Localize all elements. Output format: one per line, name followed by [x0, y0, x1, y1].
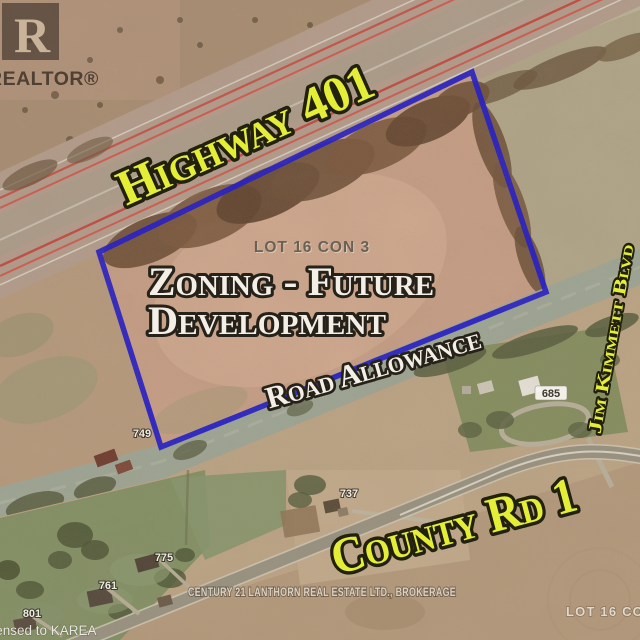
lot-16-con-3-label: LOT 16 CON 3: [254, 239, 370, 256]
house-number-775: 775: [155, 552, 173, 564]
house-number-761: 761: [99, 580, 117, 592]
house-number-737: 737: [340, 488, 358, 500]
lot-16-con-bottom-label: LOT 16 CON: [566, 604, 640, 619]
realtor-r-glyph: R: [14, 7, 51, 63]
license-watermark: Licensed to KAREA: [0, 623, 97, 638]
brokerage-watermark: CENTURY 21 LANTHORN REAL ESTATE LTD., BR…: [188, 587, 456, 599]
house-number-685: 685: [542, 388, 560, 400]
listing-photo: R REALTOR® Highway 401 LOT 16 CON 3 Zoni…: [0, 0, 640, 640]
house-number-685-badge: 685: [535, 386, 567, 400]
zoning-label-line2: Development: [148, 298, 386, 343]
house-number-801: 801: [23, 608, 41, 620]
realtor-wordmark: REALTOR®: [0, 68, 99, 90]
house-number-749: 749: [133, 428, 151, 440]
